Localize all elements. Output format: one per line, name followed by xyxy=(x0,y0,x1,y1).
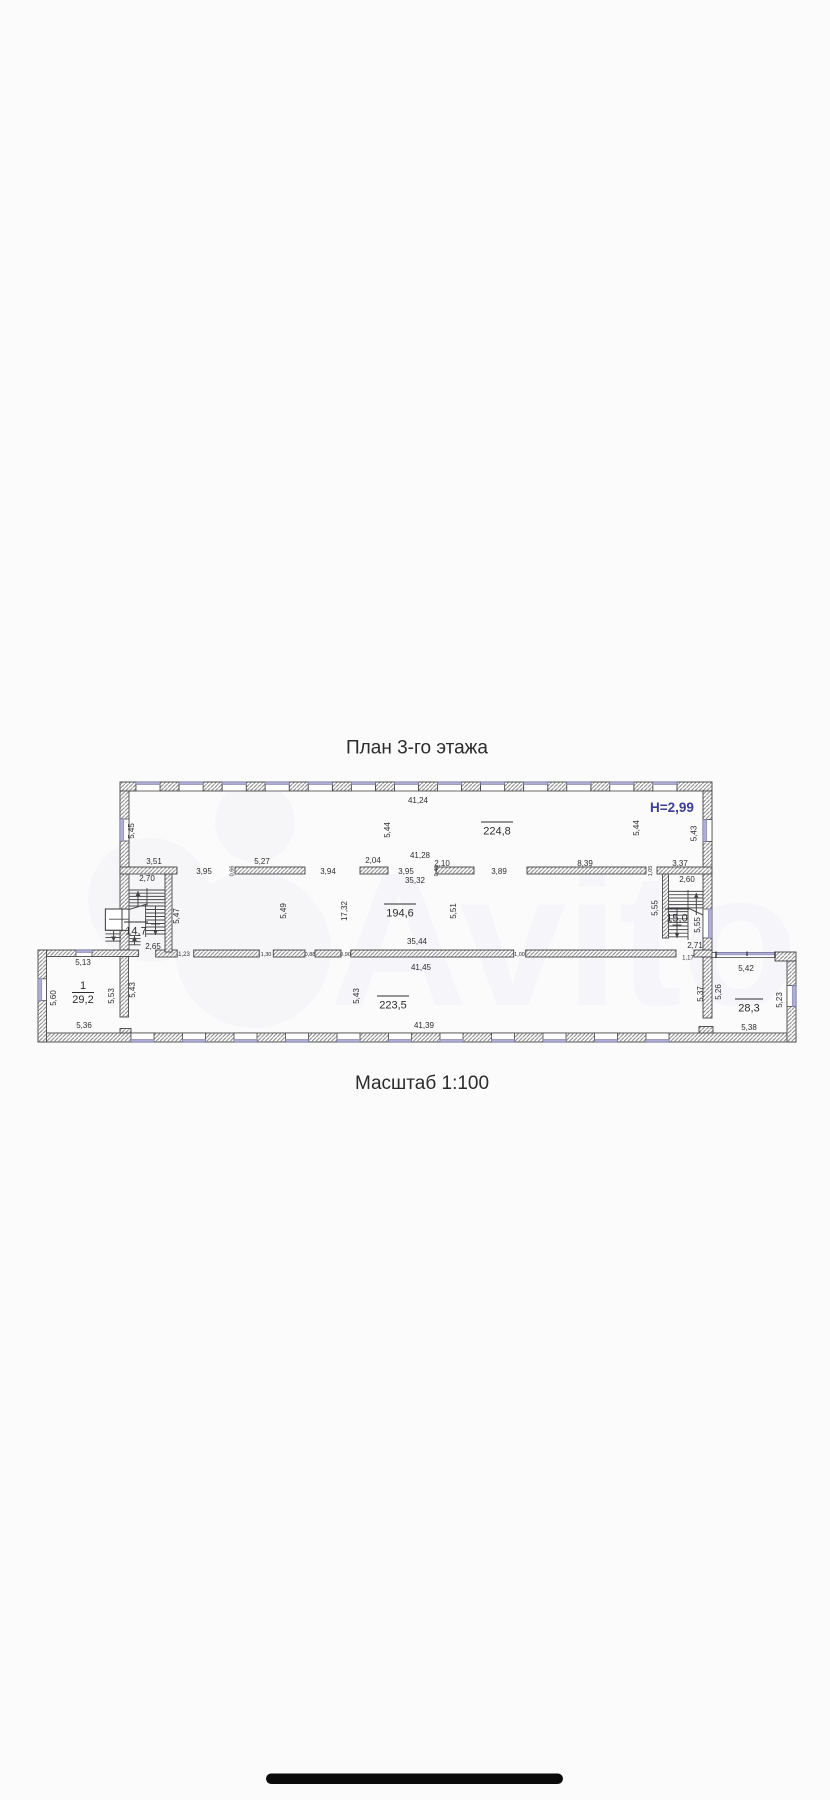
svg-text:0,90: 0,90 xyxy=(340,952,351,958)
svg-text:2,71: 2,71 xyxy=(687,941,703,950)
svg-text:5,37: 5,37 xyxy=(696,986,705,1002)
svg-text:0,66: 0,66 xyxy=(230,866,236,877)
svg-text:3,51: 3,51 xyxy=(146,857,162,866)
svg-text:223,5: 223,5 xyxy=(379,1000,407,1012)
svg-text:28,3: 28,3 xyxy=(738,1003,759,1015)
svg-text:5,43: 5,43 xyxy=(128,982,137,998)
svg-text:1,30: 1,30 xyxy=(261,952,272,958)
svg-text:H=2,99: H=2,99 xyxy=(650,800,694,815)
svg-text:Масштаб 1:100: Масштаб 1:100 xyxy=(355,1073,489,1094)
svg-text:1: 1 xyxy=(80,980,86,992)
svg-text:41,45: 41,45 xyxy=(411,963,432,972)
svg-text:0,88: 0,88 xyxy=(305,952,316,958)
svg-text:5,27: 5,27 xyxy=(254,857,270,866)
svg-text:1,17: 1,17 xyxy=(682,956,694,962)
svg-text:1,00: 1,00 xyxy=(514,952,525,958)
svg-text:41,24: 41,24 xyxy=(408,796,429,805)
svg-text:2,04: 2,04 xyxy=(365,856,381,865)
svg-text:3,95: 3,95 xyxy=(196,867,212,876)
svg-text:5,47: 5,47 xyxy=(172,908,181,924)
svg-text:5,45: 5,45 xyxy=(127,823,136,839)
svg-text:2,70: 2,70 xyxy=(139,874,155,883)
svg-text:41,28: 41,28 xyxy=(410,851,431,860)
svg-text:5,36: 5,36 xyxy=(76,1021,92,1030)
svg-text:3,89: 3,89 xyxy=(491,867,507,876)
svg-text:5,44: 5,44 xyxy=(383,822,392,838)
svg-text:5,55: 5,55 xyxy=(651,900,660,916)
svg-text:3,95: 3,95 xyxy=(398,867,414,876)
svg-text:5,13: 5,13 xyxy=(75,958,91,967)
svg-text:5,43: 5,43 xyxy=(352,988,361,1004)
svg-text:2,65: 2,65 xyxy=(145,942,161,951)
svg-text:5,38: 5,38 xyxy=(741,1023,757,1032)
svg-text:3,37: 3,37 xyxy=(672,859,688,868)
svg-text:5,42: 5,42 xyxy=(738,964,754,973)
svg-text:224,8: 224,8 xyxy=(483,826,511,838)
svg-text:План 3-го этажа: План 3-го этажа xyxy=(346,738,488,759)
svg-text:29,2: 29,2 xyxy=(72,994,93,1006)
svg-text:5,26: 5,26 xyxy=(714,984,723,1000)
svg-text:15,0: 15,0 xyxy=(666,913,687,925)
svg-text:1,23: 1,23 xyxy=(178,952,190,958)
svg-text:5,43: 5,43 xyxy=(690,825,699,841)
svg-text:3,94: 3,94 xyxy=(320,867,336,876)
svg-text:5,51: 5,51 xyxy=(449,903,458,919)
svg-text:2,60: 2,60 xyxy=(679,875,695,884)
svg-text:8,39: 8,39 xyxy=(577,859,593,868)
svg-text:5,49: 5,49 xyxy=(279,903,288,919)
svg-text:14,7: 14,7 xyxy=(125,926,146,938)
svg-text:17,32: 17,32 xyxy=(340,900,349,921)
svg-text:0,48: 0,48 xyxy=(434,866,440,877)
svg-text:5,60: 5,60 xyxy=(49,990,58,1006)
svg-text:35,32: 35,32 xyxy=(405,876,426,885)
svg-text:1,05: 1,05 xyxy=(648,866,654,877)
svg-text:194,6: 194,6 xyxy=(386,908,414,920)
svg-text:5,23: 5,23 xyxy=(775,992,784,1008)
svg-text:5,53: 5,53 xyxy=(107,988,116,1004)
svg-text:35,44: 35,44 xyxy=(407,937,428,946)
svg-text:5,44: 5,44 xyxy=(632,820,641,836)
svg-text:Avito: Avito xyxy=(330,834,798,1046)
svg-text:41,39: 41,39 xyxy=(414,1021,435,1030)
svg-text:5,55: 5,55 xyxy=(693,917,702,933)
